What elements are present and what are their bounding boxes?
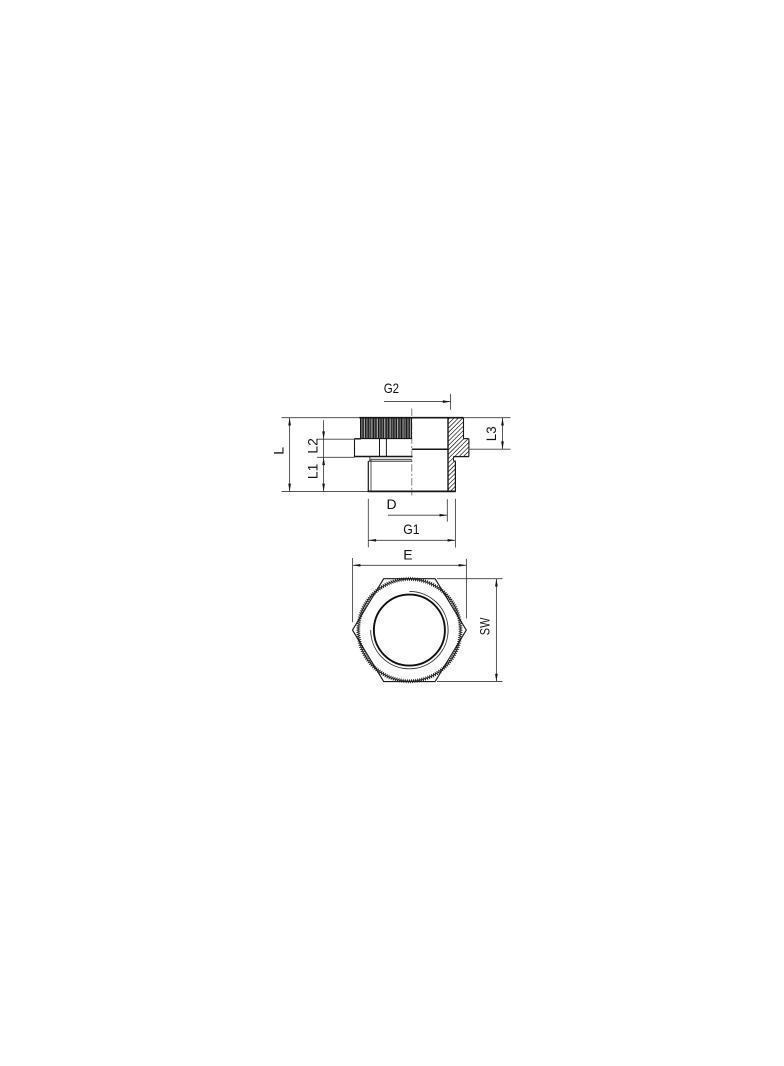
svg-text:L: L — [271, 447, 287, 455]
svg-text:D: D — [386, 496, 396, 512]
svg-text:L3: L3 — [483, 426, 499, 441]
svg-text:L2: L2 — [304, 438, 320, 454]
svg-text:SW: SW — [477, 617, 493, 635]
svg-text:G2: G2 — [384, 380, 400, 396]
svg-text:L1: L1 — [304, 463, 320, 479]
svg-text:E: E — [403, 546, 412, 562]
svg-text:G1: G1 — [403, 521, 419, 537]
